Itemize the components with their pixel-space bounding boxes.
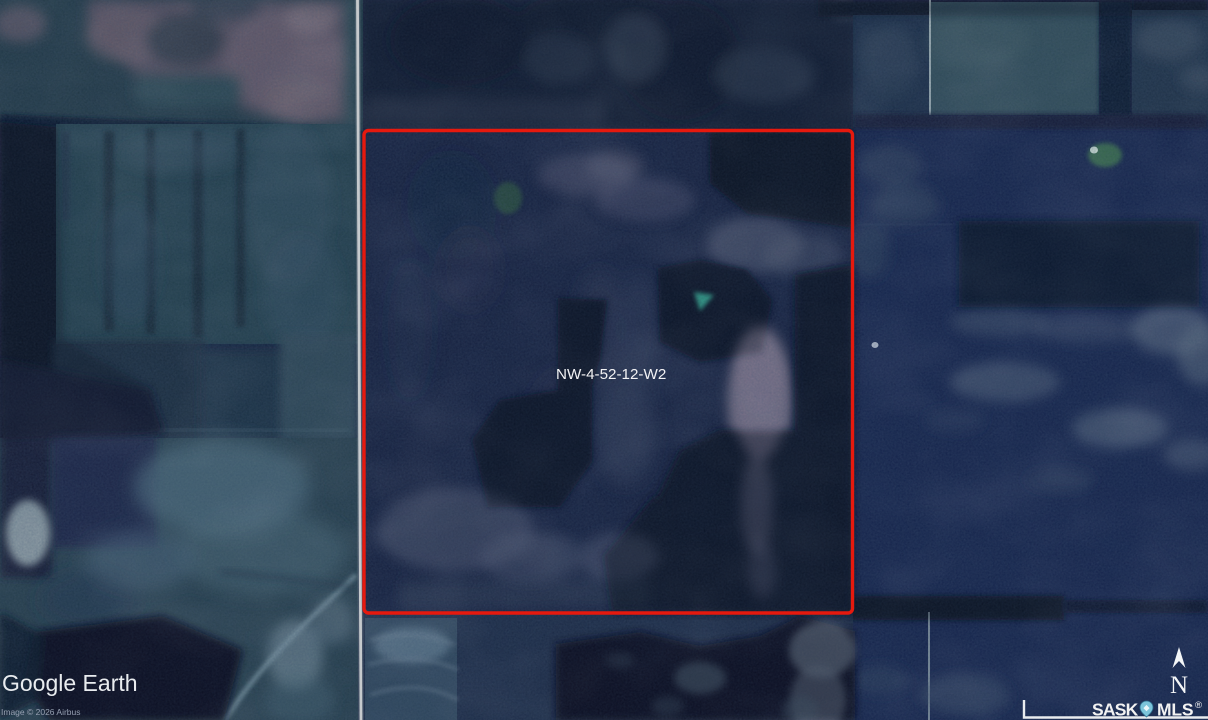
svg-text:NW-4-52-12-W2: NW-4-52-12-W2 xyxy=(556,366,666,383)
svg-text:Google Earth: Google Earth xyxy=(2,670,138,696)
svg-text:N: N xyxy=(1170,672,1188,699)
svg-text:®: ® xyxy=(1195,700,1202,711)
svg-text:MLS: MLS xyxy=(1157,700,1193,720)
svg-text:Image © 2026 Airbus: Image © 2026 Airbus xyxy=(1,707,81,717)
svg-text:SASK: SASK xyxy=(1092,700,1139,720)
